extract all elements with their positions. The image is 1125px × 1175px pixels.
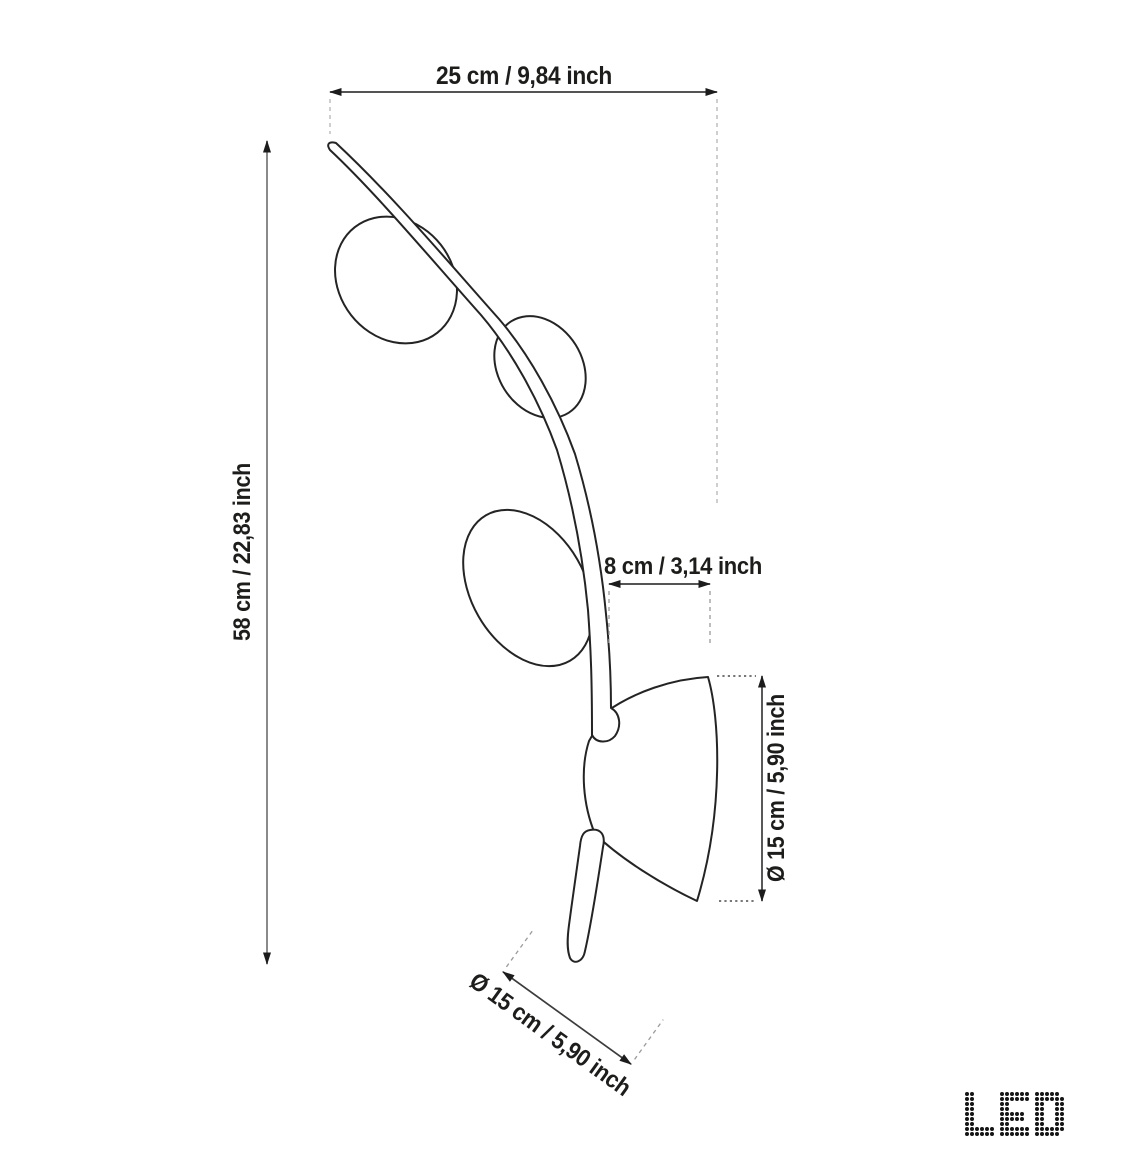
- dimension-middle-offset: 8 cm / 3,14 inch: [604, 553, 762, 646]
- dimension-label-bottom-diameter: Ø 15 cm / 5,90 inch: [464, 968, 636, 1102]
- dimension-label-right-diameter: Ø 15 cm / 5,90 inch: [763, 694, 790, 882]
- dimension-right-diameter: Ø 15 cm / 5,90 inch: [717, 676, 790, 901]
- led-logo-dots: [965, 1092, 1064, 1136]
- lamp-dimension-drawing: 25 cm / 9,84 inch 58 cm / 22,83 inch 8 c…: [0, 0, 1125, 1175]
- dimension-label-middle-offset: 8 cm / 3,14 inch: [604, 553, 762, 580]
- dimension-diagram-page: 25 cm / 9,84 inch 58 cm / 22,83 inch 8 c…: [0, 0, 1125, 1175]
- extension-line-bottom-diameter-right: [635, 1020, 664, 1060]
- led-logo: LED: [965, 1092, 1064, 1136]
- dimension-left-height: 58 cm / 22,83 inch: [229, 141, 267, 964]
- dimension-label-top-width: 25 cm / 9,84 inch: [436, 62, 612, 90]
- extension-line-bottom-diameter-left: [506, 931, 532, 967]
- lamp-blade-bottom: [568, 830, 604, 962]
- dimension-label-left-height: 58 cm / 22,83 inch: [229, 463, 256, 641]
